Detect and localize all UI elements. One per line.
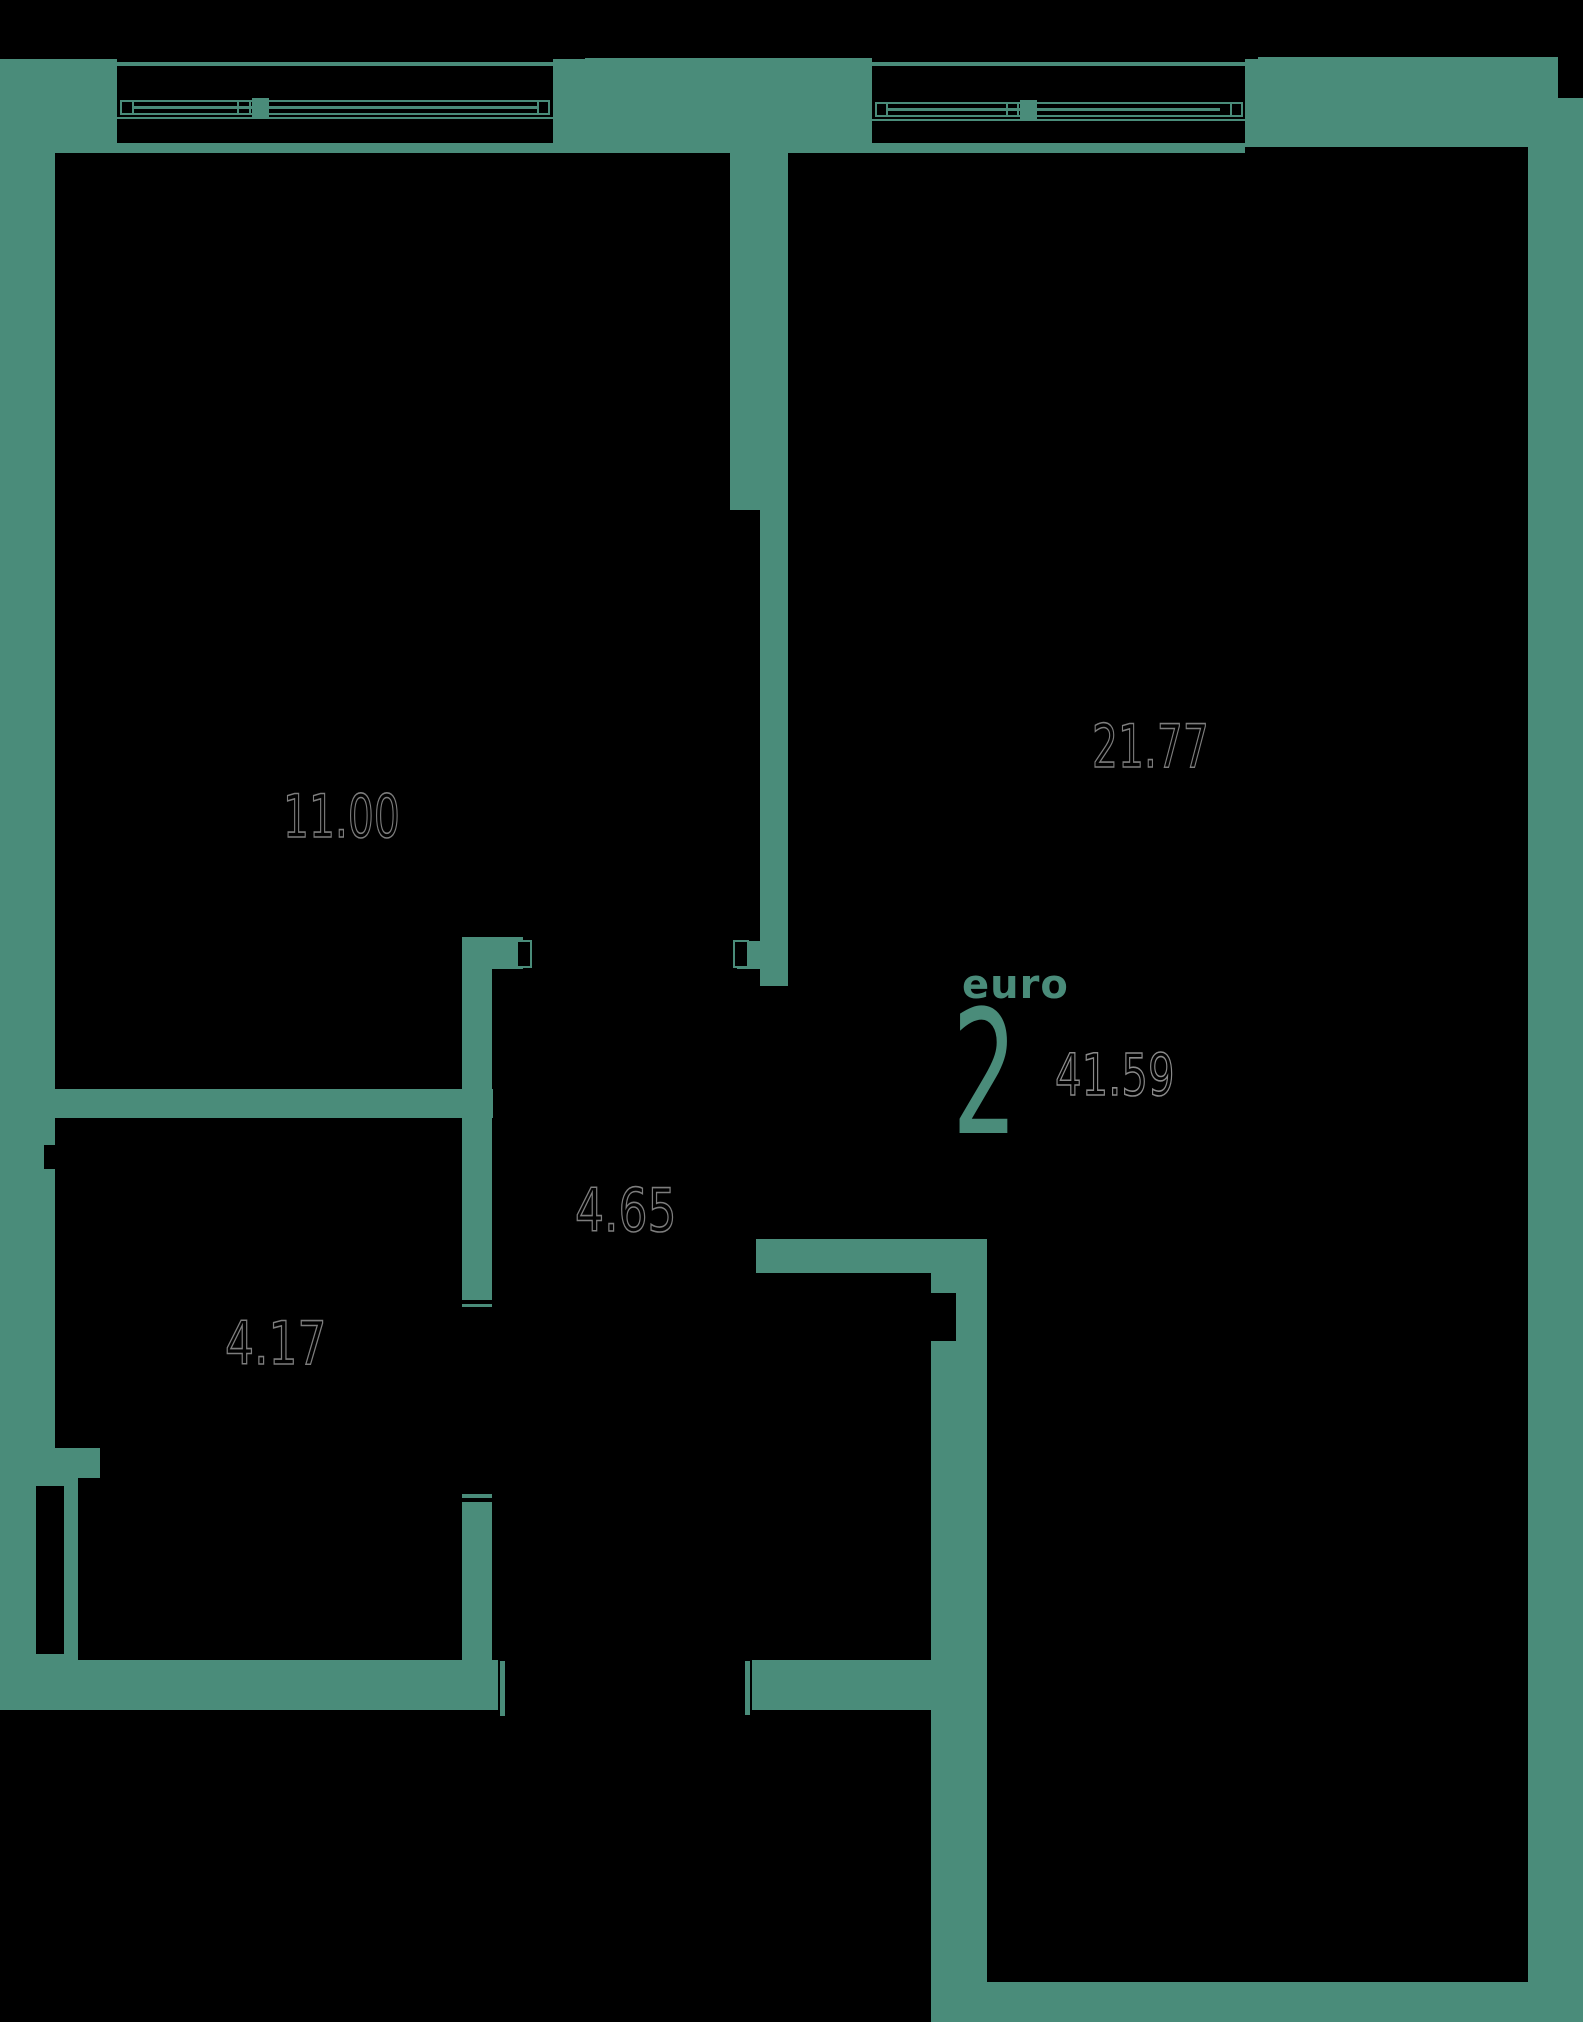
wall-lower-right-room-left — [931, 1257, 987, 2022]
wall-top-right-corner — [1558, 98, 1583, 147]
door-frame-notch-lower-right — [931, 1293, 956, 1341]
wall-window2-right-jamb — [1245, 59, 1258, 147]
window2-end-block-left — [875, 102, 888, 117]
wall-room-divider-upper — [730, 150, 788, 510]
wall-room3-top — [49, 1089, 493, 1118]
wall-top-between-windows — [585, 58, 872, 153]
window1-mullion — [252, 98, 269, 119]
door-room3-jamb-gap-bottom — [461, 1498, 493, 1502]
window2-inner-face — [872, 143, 1245, 153]
wall-hall-left-upper — [462, 937, 492, 1307]
window1-end-block-left — [120, 100, 134, 115]
wall-left-notch — [44, 1145, 56, 1169]
window1-end-block-mid — [237, 100, 251, 115]
hallway-area-label: 4.65 — [575, 1181, 677, 1241]
door-room3-jamb-gap-top — [461, 1300, 493, 1304]
window1-inner-face — [117, 143, 553, 153]
room2-area-label: 21.77 — [1092, 717, 1209, 777]
wall-bottom-mid — [752, 1660, 931, 1710]
window1-end-block-right — [537, 100, 550, 115]
window2-mullion — [1020, 100, 1037, 119]
wall-right-outer — [1528, 147, 1583, 2022]
window1-sill-line — [117, 117, 553, 119]
window2-end-block-mid — [1006, 102, 1019, 117]
floor-plan: 11.00 21.77 4.65 4.17 euro 2 41.59 — [0, 0, 1583, 2022]
window1-outer-line — [117, 62, 553, 66]
entrance-jamb-tick-left — [500, 1661, 505, 1716]
window2-end-block-right — [1230, 102, 1243, 117]
unit-rooms-count: 2 — [952, 988, 1018, 1160]
wall-room-divider-lower — [760, 510, 788, 986]
wall-bottom-right — [937, 1982, 1583, 2022]
entrance-recess-cap — [0, 1448, 100, 1478]
door-room1-jamb-left — [516, 940, 532, 968]
wall-bottom-left — [0, 1660, 498, 1710]
window1-sash-line — [133, 106, 537, 109]
window2-outer-line — [872, 62, 1245, 66]
door-room1-jamb-right — [733, 940, 749, 968]
room1-area-label: 11.00 — [283, 787, 400, 847]
wall-window1-right-jamb — [553, 59, 585, 153]
window2-sash-line — [888, 108, 1220, 111]
room3-area-label: 4.17 — [225, 1314, 327, 1374]
wall-hall-left-lower — [462, 1494, 492, 1660]
window2-sill-line — [872, 119, 1245, 121]
total-area-label: 41.59 — [1055, 1046, 1175, 1104]
wall-top-right-section — [1258, 57, 1558, 147]
entrance-door-leaf — [36, 1486, 64, 1654]
entrance-jamb-tick-right — [745, 1661, 750, 1715]
